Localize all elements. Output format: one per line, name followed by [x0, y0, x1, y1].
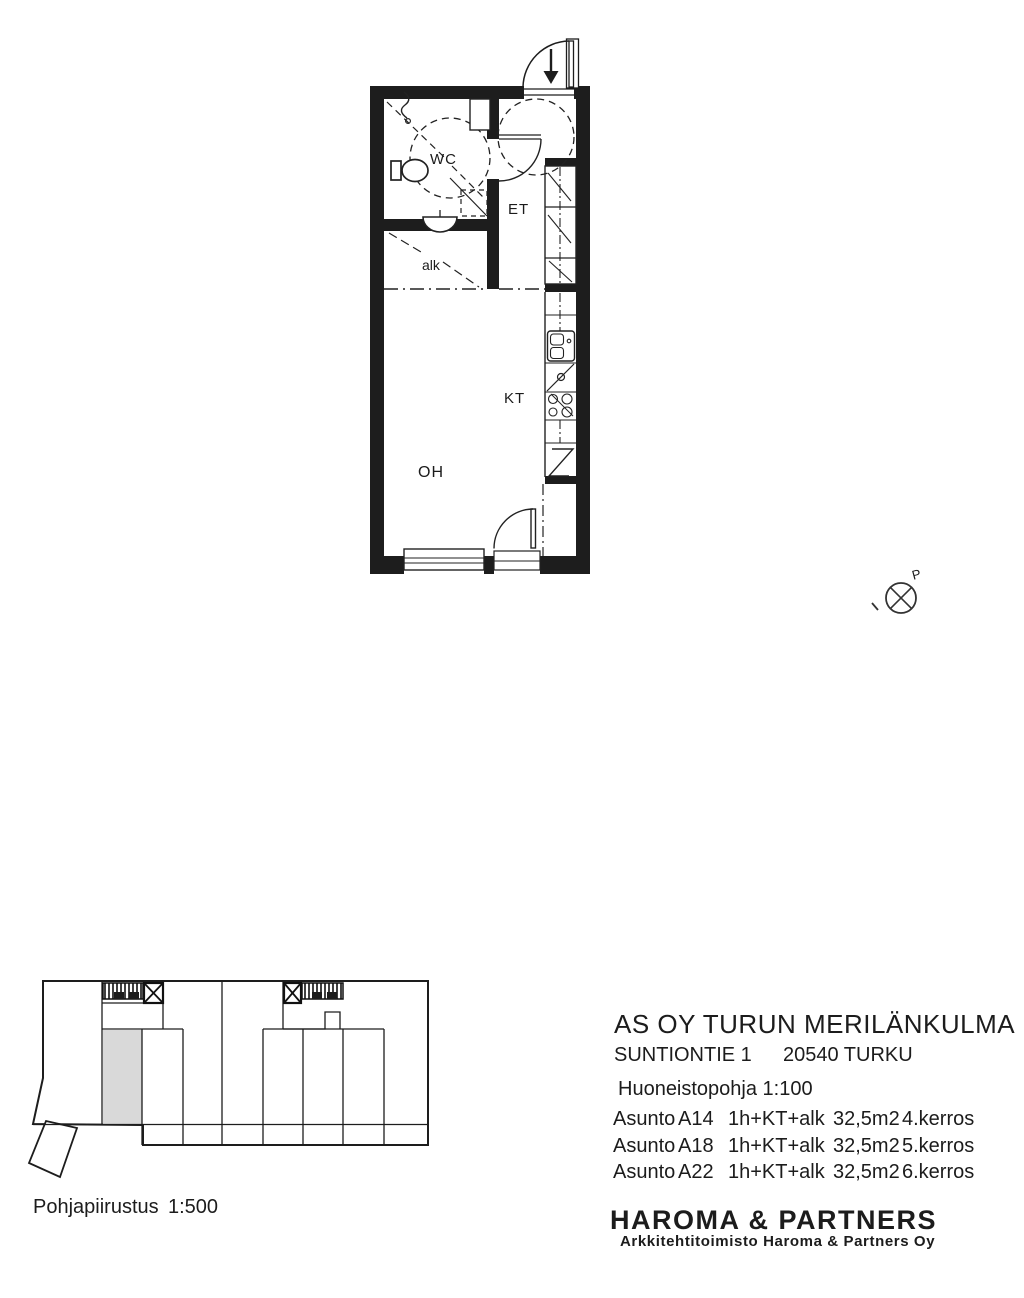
apartment-type: 1h+KT+alk — [728, 1108, 825, 1131]
et-hall — [498, 99, 574, 175]
site-plan-label: Pohjapiirustus — [33, 1196, 159, 1219]
apartment-area: 32,5m2 — [833, 1161, 900, 1184]
kitchen — [543, 292, 576, 556]
apartment-label: Asunto — [613, 1135, 675, 1158]
apartment-area: 32,5m2 — [833, 1108, 900, 1131]
duct-shaft — [470, 99, 490, 130]
room-label-wc: WC — [430, 151, 457, 168]
apartment-label: Asunto — [613, 1161, 675, 1184]
elevator-icon — [144, 983, 163, 1003]
dishwasher-icon — [547, 364, 574, 391]
north-letter: P — [910, 566, 922, 583]
stairs-icon — [302, 983, 343, 999]
firm-name: HAROMA & PARTNERS — [610, 1205, 937, 1236]
window — [404, 549, 484, 570]
room-label-et: ET — [508, 201, 529, 218]
room-label-alk: alk — [422, 257, 441, 273]
entry-arrow-icon — [544, 49, 559, 84]
balcony-door — [494, 509, 540, 570]
elevator-icon — [284, 983, 301, 1003]
building-outline — [33, 981, 428, 1145]
turning-circle — [498, 99, 574, 175]
apartment-row: Asunto A18 1h+KT+alk 32,5m2 5.kerros — [612, 1135, 1022, 1159]
street-address: SUNTIONTIE 1 — [614, 1044, 752, 1066]
kitchen-sink-icon — [548, 331, 575, 361]
apartment-type: 1h+KT+alk — [728, 1135, 825, 1158]
postal-city: 20540 TURKU — [783, 1044, 913, 1067]
apartment-floor: 6.kerros — [902, 1161, 974, 1184]
room-label-kt: KT — [504, 390, 525, 407]
fridge-icon — [549, 449, 573, 476]
site-plan-caption: Pohjapiirustus 1:500 — [33, 1196, 293, 1220]
stove-icon — [549, 394, 574, 417]
building-wing — [29, 1121, 77, 1177]
apartment-floor: 4.kerros — [902, 1108, 974, 1131]
walls — [370, 86, 590, 574]
site-plan-scale: 1:500 — [168, 1196, 218, 1219]
apartment-label: Asunto — [613, 1108, 675, 1131]
project-address: SUNTIONTIE 1 20540 TURKU — [614, 1044, 752, 1067]
apartment-id: A18 — [678, 1135, 714, 1158]
apartment-id: A14 — [678, 1108, 714, 1131]
highlighted-apartment — [103, 1030, 142, 1124]
floor-plan: WC ET alk — [355, 30, 605, 585]
wc-door — [499, 135, 541, 181]
apartment-type: 1h+KT+alk — [728, 1161, 825, 1184]
site-plan — [20, 965, 440, 1185]
apartment-floor: 5.kerros — [902, 1135, 974, 1158]
room-label-oh: OH — [418, 464, 444, 481]
plan-scale-label: Huoneistopohja 1:100 — [618, 1078, 813, 1101]
north-icon: P — [860, 550, 940, 625]
apartment-row: Asunto A22 1h+KT+alk 32,5m2 6.kerros — [612, 1161, 1022, 1185]
closet — [545, 166, 576, 284]
apartment-row: Asunto A14 1h+KT+alk 32,5m2 4.kerros — [612, 1108, 1022, 1132]
sink-icon — [423, 210, 457, 232]
apartment-area: 32,5m2 — [833, 1135, 900, 1158]
stairs-icon — [103, 983, 143, 999]
toilet-icon — [391, 160, 428, 182]
apartment-id: A22 — [678, 1161, 714, 1184]
project-title: AS OY TURUN MERILÄNKULMA — [614, 1009, 1015, 1040]
firm-subtitle: Arkkitehtitoimisto Haroma & Partners Oy — [620, 1233, 935, 1250]
